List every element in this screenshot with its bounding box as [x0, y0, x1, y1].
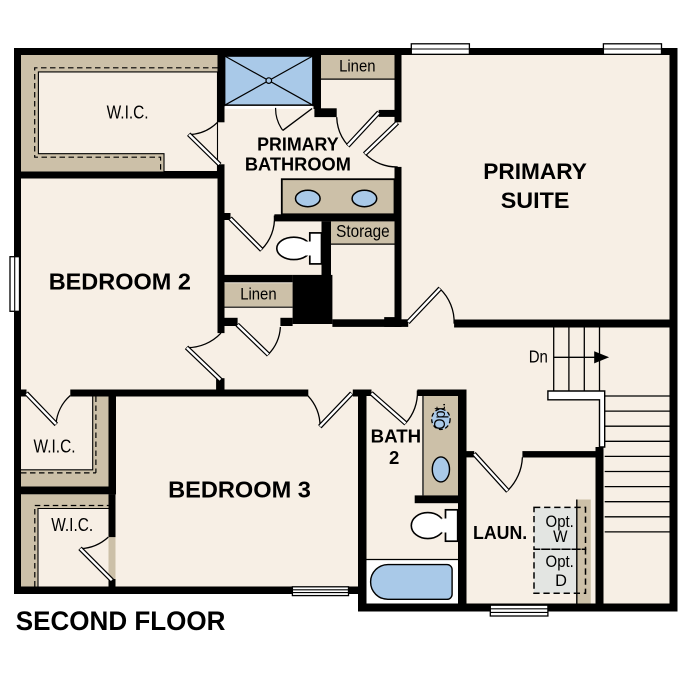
- svg-text:Opt.: Opt.: [432, 403, 449, 430]
- svg-text:BEDROOM 2: BEDROOM 2: [49, 269, 191, 295]
- svg-text:BATHROOM: BATHROOM: [245, 155, 351, 175]
- svg-text:SECOND FLOOR: SECOND FLOOR: [16, 606, 226, 636]
- svg-text:2: 2: [389, 447, 399, 468]
- svg-text:W.I.C.: W.I.C.: [51, 515, 93, 535]
- svg-text:PRIMARY: PRIMARY: [483, 159, 587, 184]
- svg-text:W.I.C.: W.I.C.: [34, 437, 76, 457]
- svg-text:W.I.C.: W.I.C.: [107, 103, 149, 123]
- svg-text:D: D: [555, 571, 567, 590]
- svg-text:Linen: Linen: [339, 57, 375, 75]
- svg-text:BEDROOM 3: BEDROOM 3: [168, 477, 311, 503]
- svg-text:PRIMARY: PRIMARY: [257, 135, 339, 155]
- svg-text:Opt.: Opt.: [546, 553, 574, 571]
- svg-text:W: W: [553, 527, 567, 546]
- svg-text:Dn: Dn: [529, 347, 548, 367]
- svg-text:Storage: Storage: [336, 221, 390, 241]
- svg-text:SUITE: SUITE: [501, 188, 570, 213]
- svg-text:LAUN.: LAUN.: [473, 523, 527, 543]
- svg-text:BATH: BATH: [371, 425, 421, 446]
- svg-text:Linen: Linen: [240, 286, 276, 304]
